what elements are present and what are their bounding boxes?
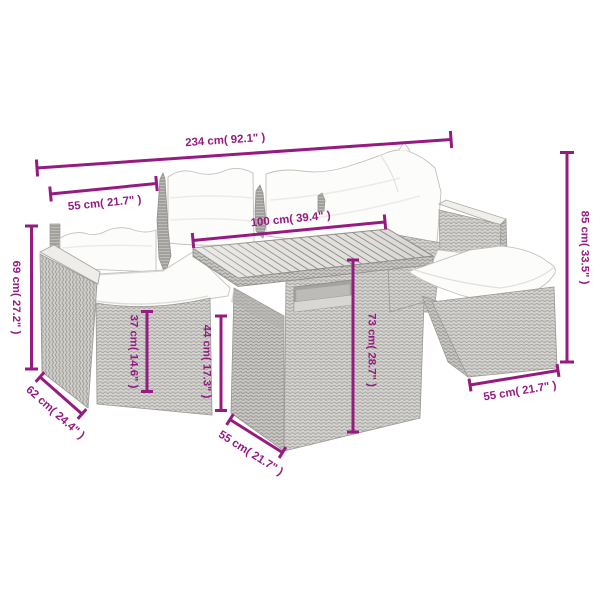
- svg-text:44 cm( 17.3" ): 44 cm( 17.3" ): [201, 325, 213, 399]
- svg-text:37 cm( 14.6" ): 37 cm( 14.6" ): [128, 315, 140, 389]
- svg-text:69 cm( 27.2" ): 69 cm( 27.2" ): [10, 261, 22, 335]
- svg-text:73 cm( 28.7" ): 73 cm( 28.7" ): [366, 313, 378, 387]
- svg-text:85 cm( 33.5" ): 85 cm( 33.5" ): [579, 211, 591, 285]
